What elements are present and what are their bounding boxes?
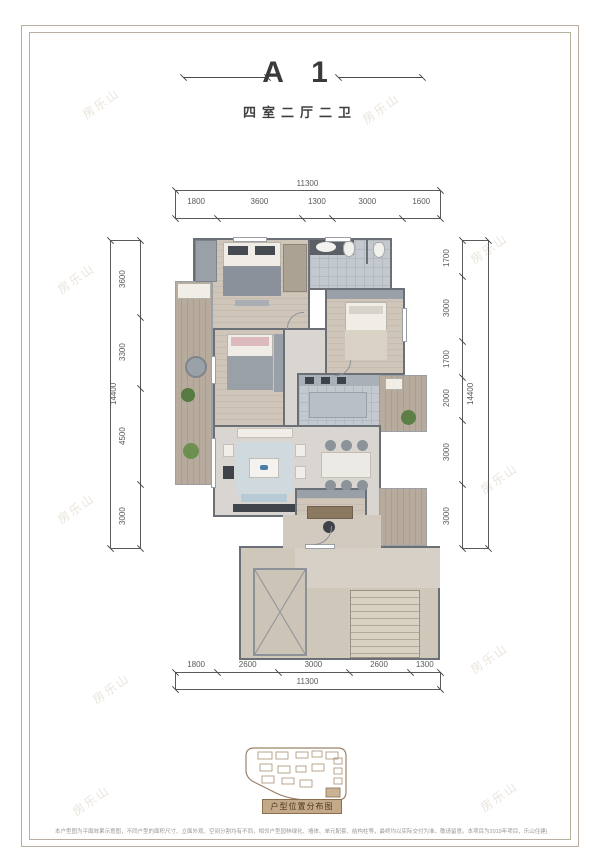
bath-divider-wall	[366, 240, 368, 264]
dim-label: 11300	[175, 677, 440, 687]
elevator-shaft	[253, 568, 307, 656]
pillow	[349, 306, 383, 314]
dim-label: 3000	[442, 498, 452, 534]
watermark-text: 房乐山	[89, 669, 133, 707]
plant	[181, 388, 195, 402]
watermark-text: 房乐山	[467, 639, 511, 677]
study-shelf	[297, 490, 365, 498]
dim-line	[462, 240, 488, 241]
pillow	[255, 246, 275, 255]
dim-label: 3000	[332, 197, 402, 207]
blanket-bedroom-2	[227, 356, 273, 390]
dim-label: 11300	[175, 179, 440, 189]
dim-line	[175, 689, 440, 690]
dim-label: 3000	[442, 290, 452, 326]
dim-label: 3300	[118, 334, 128, 370]
dim-label: 1700	[442, 240, 452, 276]
brochure-page: 房乐山房乐山房乐山房乐山房乐山房乐山房乐山房乐山房乐山房乐山 A 1 四室二厅二…	[0, 0, 600, 868]
armchair	[295, 466, 306, 479]
dim-label: 3000	[118, 498, 128, 534]
table-decor	[260, 465, 268, 470]
window	[325, 237, 351, 242]
study-desk	[307, 506, 353, 519]
dim-label: 2000	[442, 380, 452, 416]
dim-line	[110, 548, 140, 549]
dim-label: 1300	[302, 197, 332, 207]
dining-chair	[325, 440, 336, 451]
disclaimer-text: 本户型图为平面效果示意图，不同户型的面积尺寸、立面外观、空间分割均有不同，相邻户…	[55, 827, 547, 835]
wardrobe-bedroom-right	[327, 290, 403, 299]
dim-label: 1700	[442, 341, 452, 377]
armchair	[223, 444, 234, 457]
pillow	[228, 246, 248, 255]
window	[233, 237, 267, 242]
dim-label: 1600	[402, 197, 440, 207]
unit-subtitle: 四室二厅二卫	[0, 102, 600, 121]
dim-line	[440, 190, 441, 218]
staircase	[350, 590, 420, 658]
armchair-dark	[223, 466, 234, 479]
watermark-text: 房乐山	[54, 259, 98, 297]
dining-chair	[341, 440, 352, 451]
elevator-x-icon	[255, 570, 305, 654]
rattan-chair	[185, 356, 207, 378]
bed-bench	[235, 300, 269, 306]
armchair	[295, 444, 306, 457]
dim-label: 14400	[466, 376, 476, 412]
room-balcony-southeast	[379, 488, 427, 546]
dim-line	[110, 240, 140, 241]
kitchen-island	[309, 392, 367, 418]
balcony-cabinet	[177, 283, 211, 299]
minimap-label: 户型位置分布图	[262, 799, 342, 814]
toilet	[343, 241, 355, 257]
window	[402, 308, 407, 342]
dim-label: 3600	[118, 261, 128, 297]
kitchen-sink	[305, 377, 314, 384]
unit-highlight	[326, 788, 340, 797]
kitchen-hob	[321, 377, 330, 384]
pillow-pink	[231, 337, 269, 346]
watermark-text: 房乐山	[477, 459, 521, 497]
dim-label: 1800	[175, 197, 217, 207]
dim-line	[462, 548, 488, 549]
washer	[385, 378, 403, 390]
watermark-text: 房乐山	[54, 489, 98, 527]
entry-door-gap	[305, 544, 335, 549]
dim-line	[175, 672, 440, 673]
watermark-text: 房乐山	[467, 229, 511, 267]
wardrobe-master	[195, 240, 217, 282]
plant	[183, 443, 199, 459]
floor-plan	[175, 238, 440, 662]
dim-line	[462, 240, 463, 548]
blanket-bedroom-right	[345, 330, 387, 360]
dining-chair	[357, 440, 368, 451]
area-lobby	[295, 548, 440, 588]
bath-basin	[316, 242, 336, 252]
dim-line	[488, 240, 489, 548]
dim-label: 3000	[442, 434, 452, 470]
watermark-text: 房乐山	[477, 777, 521, 815]
wardrobe-bedroom-2	[274, 334, 283, 392]
dresser-master	[283, 244, 307, 292]
dim-label: 14400	[109, 376, 119, 412]
balcony-door	[211, 356, 216, 384]
watermark-text: 房乐山	[69, 781, 113, 819]
dim-label: 4500	[118, 418, 128, 454]
dining-table	[321, 452, 371, 478]
blanket-master	[223, 266, 281, 296]
dim-label: 3600	[217, 197, 301, 207]
dim-line	[175, 190, 440, 191]
plant	[401, 410, 416, 425]
rug-runner	[241, 494, 287, 502]
toilet	[373, 242, 385, 258]
dim-line	[140, 240, 141, 548]
balcony-slider	[211, 438, 216, 488]
sofa	[237, 428, 293, 438]
kitchen-appliance	[337, 377, 346, 384]
dim-line	[175, 218, 440, 219]
tv-cabinet	[233, 504, 295, 512]
unit-title: A 1	[0, 56, 600, 90]
